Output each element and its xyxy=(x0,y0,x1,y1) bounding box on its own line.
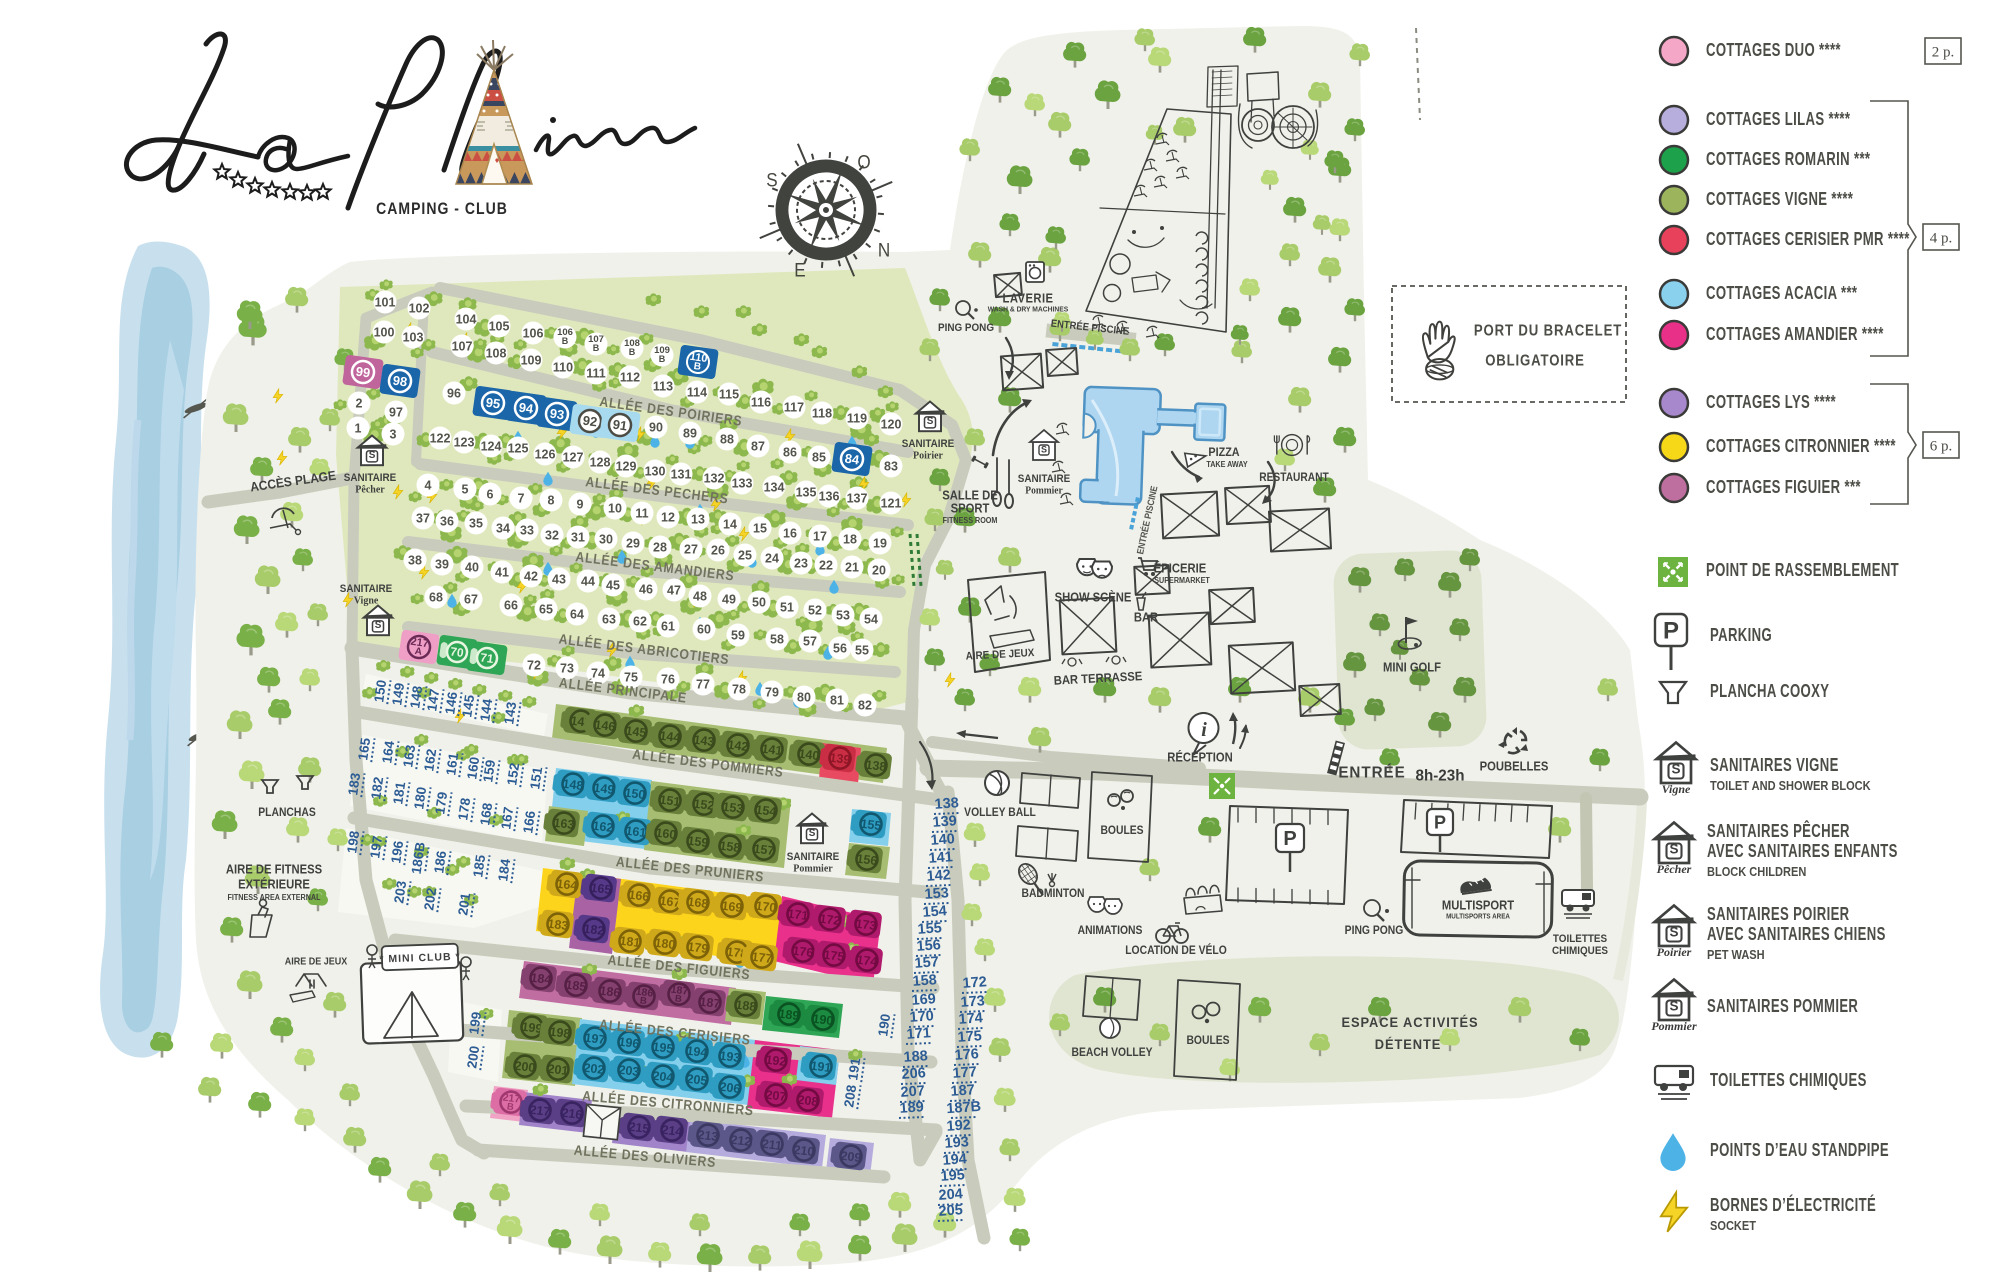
svg-text:20: 20 xyxy=(872,564,886,578)
svg-text:116: 116 xyxy=(751,396,771,410)
svg-text:40: 40 xyxy=(465,561,479,575)
svg-text:204: 204 xyxy=(938,1186,963,1204)
svg-text:159: 159 xyxy=(687,834,709,850)
svg-text:182: 182 xyxy=(368,776,386,800)
svg-text:138: 138 xyxy=(865,758,887,774)
svg-text:28: 28 xyxy=(653,541,667,555)
svg-text:8h-23h: 8h-23h xyxy=(1416,767,1465,784)
svg-text:142: 142 xyxy=(926,867,951,885)
svg-text:168: 168 xyxy=(477,801,495,826)
svg-text:167: 167 xyxy=(498,806,516,830)
svg-text:96: 96 xyxy=(447,387,461,401)
svg-text:SPORT: SPORT xyxy=(951,501,990,516)
svg-text:17: 17 xyxy=(813,530,827,544)
svg-text:25: 25 xyxy=(738,549,752,563)
svg-text:99: 99 xyxy=(355,364,371,381)
svg-text:SANITAIRES VIGNE: SANITAIRES VIGNE xyxy=(1710,755,1839,776)
svg-text:166: 166 xyxy=(520,809,538,834)
svg-text:4: 4 xyxy=(425,479,432,493)
svg-text:FITNESS ROOM: FITNESS ROOM xyxy=(943,515,998,524)
svg-text:BAR: BAR xyxy=(1134,610,1159,625)
svg-text:41: 41 xyxy=(495,566,509,580)
svg-text:9: 9 xyxy=(577,498,584,512)
svg-text:S: S xyxy=(1671,761,1680,776)
svg-text:73: 73 xyxy=(560,662,574,676)
svg-text:5: 5 xyxy=(462,483,469,497)
svg-text:O: O xyxy=(857,152,870,173)
svg-text:164: 164 xyxy=(556,877,578,893)
svg-text:Vigne: Vigne xyxy=(354,596,379,607)
svg-text:186: 186 xyxy=(431,849,449,874)
svg-text:191: 191 xyxy=(810,1059,832,1075)
svg-text:ENTRÉE: ENTRÉE xyxy=(1338,762,1405,781)
svg-text:180: 180 xyxy=(411,786,429,810)
svg-text:121: 121 xyxy=(881,497,902,511)
svg-text:144: 144 xyxy=(477,697,495,722)
svg-text:196: 196 xyxy=(388,839,406,864)
svg-text:29: 29 xyxy=(626,537,640,551)
svg-text:133: 133 xyxy=(732,477,753,491)
svg-text:211: 211 xyxy=(761,1137,783,1153)
svg-text:166: 166 xyxy=(628,888,650,904)
svg-text:SANITAIRE: SANITAIRE xyxy=(340,583,393,595)
svg-text:157: 157 xyxy=(753,842,775,858)
svg-text:SANITAIRES POMMIER: SANITAIRES POMMIER xyxy=(1707,996,1858,1017)
svg-text:S: S xyxy=(809,828,816,839)
svg-text:72: 72 xyxy=(527,659,541,673)
svg-text:2: 2 xyxy=(356,397,363,411)
svg-text:B: B xyxy=(593,343,600,353)
svg-text:149: 149 xyxy=(593,781,615,797)
svg-text:44: 44 xyxy=(581,575,595,589)
svg-text:189: 189 xyxy=(778,1007,800,1023)
svg-text:33: 33 xyxy=(520,524,534,538)
svg-text:2 p.: 2 p. xyxy=(1932,44,1955,60)
svg-text:PET WASH: PET WASH xyxy=(1707,947,1765,962)
svg-text:203: 203 xyxy=(391,879,409,904)
svg-text:COTTAGES FIGUIER ***: COTTAGES FIGUIER *** xyxy=(1706,477,1861,498)
svg-text:164: 164 xyxy=(379,739,397,764)
svg-text:183: 183 xyxy=(547,917,569,933)
svg-text:26: 26 xyxy=(711,544,725,558)
svg-text:201: 201 xyxy=(455,891,473,916)
svg-text:80: 80 xyxy=(797,691,811,705)
svg-text:PORT DU BRACELET: PORT DU BRACELET xyxy=(1474,322,1622,339)
svg-text:1: 1 xyxy=(355,422,362,436)
svg-text:202: 202 xyxy=(583,1061,605,1077)
svg-text:CAMPING - CLUB: CAMPING - CLUB xyxy=(376,200,508,218)
svg-text:42: 42 xyxy=(524,570,538,584)
svg-text:169: 169 xyxy=(911,991,936,1009)
svg-text:191: 191 xyxy=(845,1056,863,1081)
svg-text:93: 93 xyxy=(549,406,565,423)
svg-text:135: 135 xyxy=(796,486,817,500)
svg-text:140: 140 xyxy=(930,831,955,849)
svg-text:COTTAGES AMANDIER ****: COTTAGES AMANDIER **** xyxy=(1706,324,1884,345)
svg-text:97: 97 xyxy=(389,406,403,420)
svg-text:107: 107 xyxy=(452,340,473,354)
svg-text:128: 128 xyxy=(590,456,611,470)
svg-text:210: 210 xyxy=(793,1143,815,1159)
svg-text:94: 94 xyxy=(518,400,535,417)
svg-text:197: 197 xyxy=(367,835,385,859)
svg-text:BLOCK CHILDREN: BLOCK CHILDREN xyxy=(1707,864,1806,879)
svg-text:199: 199 xyxy=(466,1011,484,1035)
svg-text:134: 134 xyxy=(764,481,785,495)
svg-text:48: 48 xyxy=(693,590,707,604)
svg-text:159: 159 xyxy=(480,759,498,783)
svg-text:EXTÉRIEURE: EXTÉRIEURE xyxy=(238,876,310,892)
svg-text:153: 153 xyxy=(722,800,744,816)
svg-text:52: 52 xyxy=(808,604,822,618)
svg-text:156: 156 xyxy=(856,852,878,868)
svg-text:54: 54 xyxy=(864,613,878,627)
svg-text:32: 32 xyxy=(545,529,559,543)
svg-text:61: 61 xyxy=(661,620,675,634)
svg-text:S: S xyxy=(369,450,376,461)
svg-text:12: 12 xyxy=(661,511,675,525)
svg-text:204: 204 xyxy=(652,1069,674,1085)
svg-text:24: 24 xyxy=(765,552,779,566)
svg-text:6 p.: 6 p. xyxy=(1930,438,1953,454)
svg-text:Vigne: Vigne xyxy=(1662,782,1691,796)
svg-text:92: 92 xyxy=(582,413,598,430)
svg-text:MULTISPORT: MULTISPORT xyxy=(1442,898,1515,913)
svg-text:101: 101 xyxy=(375,296,396,310)
svg-text:106: 106 xyxy=(523,327,544,341)
svg-text:130: 130 xyxy=(645,465,666,479)
svg-text:169: 169 xyxy=(721,899,743,915)
svg-text:137: 137 xyxy=(847,492,868,506)
svg-text:S: S xyxy=(375,620,382,631)
svg-text:205: 205 xyxy=(938,1202,963,1220)
svg-text:POINT DE RASSEMBLEMENT: POINT DE RASSEMBLEMENT xyxy=(1706,560,1899,581)
svg-text:AIRE DE JEUX: AIRE DE JEUX xyxy=(285,956,348,968)
svg-text:217: 217 xyxy=(529,1103,551,1119)
svg-text:57: 57 xyxy=(803,635,817,649)
svg-text:S: S xyxy=(1669,998,1678,1013)
svg-text:195: 195 xyxy=(940,1167,965,1185)
svg-text:163: 163 xyxy=(400,743,418,768)
svg-text:190: 190 xyxy=(812,1012,834,1028)
svg-text:14: 14 xyxy=(723,518,737,532)
svg-text:Poirier: Poirier xyxy=(913,451,944,462)
svg-text:200: 200 xyxy=(464,1045,482,1069)
svg-text:205: 205 xyxy=(686,1072,708,1088)
svg-text:176: 176 xyxy=(954,1046,979,1064)
svg-text:34: 34 xyxy=(496,522,510,536)
svg-text:208: 208 xyxy=(841,1083,859,1108)
svg-text:TOILETTES CHIMIQUES: TOILETTES CHIMIQUES xyxy=(1710,1070,1867,1091)
svg-text:140: 140 xyxy=(798,747,820,763)
svg-text:76: 76 xyxy=(661,673,675,687)
svg-text:COTTAGES LILAS ****: COTTAGES LILAS **** xyxy=(1706,109,1851,130)
svg-text:63: 63 xyxy=(602,613,616,627)
svg-text:78: 78 xyxy=(732,683,746,697)
svg-text:6: 6 xyxy=(487,488,494,502)
svg-text:POINTS D’EAU STANDPIPE: POINTS D’EAU STANDPIPE xyxy=(1710,1140,1889,1161)
svg-text:162: 162 xyxy=(592,819,614,835)
svg-text:139: 139 xyxy=(932,813,957,831)
svg-text:SOCKET: SOCKET xyxy=(1710,1218,1757,1233)
svg-text:CHIMIQUES: CHIMIQUES xyxy=(1552,945,1608,957)
svg-text:87: 87 xyxy=(751,440,765,454)
svg-text:103: 103 xyxy=(403,331,424,345)
svg-text:64: 64 xyxy=(570,608,584,622)
svg-text:PARKING: PARKING xyxy=(1710,625,1772,646)
svg-text:143: 143 xyxy=(501,700,519,725)
svg-text:154: 154 xyxy=(755,803,777,819)
svg-text:163: 163 xyxy=(553,816,575,832)
svg-text:132: 132 xyxy=(704,472,725,486)
svg-text:COTTAGES CITRONNIER ****: COTTAGES CITRONNIER **** xyxy=(1706,436,1896,457)
svg-text:15: 15 xyxy=(753,522,767,536)
svg-text:Pommier: Pommier xyxy=(793,864,833,875)
svg-text:193: 193 xyxy=(944,1134,969,1152)
svg-text:Pêcher: Pêcher xyxy=(1657,862,1692,876)
svg-text:160: 160 xyxy=(655,826,677,842)
svg-text:161: 161 xyxy=(443,751,461,776)
svg-text:215: 215 xyxy=(628,1120,650,1136)
svg-text:143: 143 xyxy=(693,733,715,749)
svg-text:158: 158 xyxy=(912,972,937,990)
svg-text:21: 21 xyxy=(845,561,859,575)
svg-text:FITNESS AREA EXTERNAL: FITNESS AREA EXTERNAL xyxy=(227,892,320,901)
svg-text:148: 148 xyxy=(562,777,584,793)
svg-text:102: 102 xyxy=(409,302,430,316)
svg-text:203: 203 xyxy=(618,1063,640,1079)
svg-text:216: 216 xyxy=(561,1106,583,1122)
svg-text:OBLIGATOIRE: OBLIGATOIRE xyxy=(1485,352,1585,369)
svg-text:Poirier: Poirier xyxy=(1657,945,1692,959)
svg-text:53: 53 xyxy=(836,609,850,623)
svg-text:35: 35 xyxy=(469,517,483,531)
svg-text:110: 110 xyxy=(553,361,573,375)
svg-text:174: 174 xyxy=(958,1010,983,1028)
svg-text:181: 181 xyxy=(619,934,641,950)
svg-text:161: 161 xyxy=(625,824,647,840)
svg-text:Pommier: Pommier xyxy=(1651,1019,1697,1033)
svg-text:4 p.: 4 p. xyxy=(1930,230,1953,246)
svg-text:SANITAIRE: SANITAIRE xyxy=(1018,473,1071,485)
svg-text:N: N xyxy=(878,240,890,261)
svg-text:209: 209 xyxy=(840,1149,862,1165)
svg-text:193: 193 xyxy=(719,1049,741,1065)
svg-text:55: 55 xyxy=(855,644,869,658)
svg-text:208: 208 xyxy=(797,1093,819,1109)
svg-text:188: 188 xyxy=(903,1048,928,1066)
svg-text:100: 100 xyxy=(374,326,395,340)
svg-text:COTTAGES VIGNE ****: COTTAGES VIGNE **** xyxy=(1706,189,1854,210)
svg-text:BADMINTON: BADMINTON xyxy=(1021,888,1084,901)
svg-text:P: P xyxy=(1434,812,1446,832)
svg-text:30: 30 xyxy=(599,533,613,547)
svg-text:117: 117 xyxy=(784,401,804,415)
svg-text:120: 120 xyxy=(881,418,902,432)
svg-text:149: 149 xyxy=(389,682,407,706)
svg-text:60: 60 xyxy=(697,623,711,637)
svg-text:PLANCHA COOXY: PLANCHA COOXY xyxy=(1710,681,1829,702)
svg-text:127: 127 xyxy=(563,451,584,465)
svg-text:ESPACE ACTIVITÉS: ESPACE ACTIVITÉS xyxy=(1342,1014,1479,1030)
svg-text:3: 3 xyxy=(390,428,397,442)
svg-text:98: 98 xyxy=(392,373,408,390)
svg-text:PLANCHAS: PLANCHAS xyxy=(258,807,315,820)
svg-text:13: 13 xyxy=(691,513,705,527)
svg-text:37: 37 xyxy=(416,512,430,526)
svg-text:192: 192 xyxy=(765,1053,787,1069)
svg-text:B: B xyxy=(693,361,702,373)
svg-text:206: 206 xyxy=(901,1065,926,1083)
svg-text:COTTAGES ROMARIN ***: COTTAGES ROMARIN *** xyxy=(1706,149,1871,170)
svg-text:155: 155 xyxy=(860,817,882,833)
svg-text:150: 150 xyxy=(371,679,389,703)
svg-text:195: 195 xyxy=(652,1040,674,1056)
svg-text:129: 129 xyxy=(616,460,637,474)
svg-text:31: 31 xyxy=(571,531,585,545)
svg-text:66: 66 xyxy=(504,599,518,613)
svg-text:175: 175 xyxy=(823,948,845,964)
svg-text:152: 152 xyxy=(504,762,522,786)
svg-text:152: 152 xyxy=(693,797,715,813)
svg-text:154: 154 xyxy=(922,903,947,921)
svg-text:212: 212 xyxy=(730,1133,752,1149)
svg-text:187: 187 xyxy=(950,1082,975,1100)
svg-text:112: 112 xyxy=(620,371,640,385)
svg-text:91: 91 xyxy=(612,417,628,434)
svg-text:141: 141 xyxy=(928,849,953,867)
svg-text:S: S xyxy=(1669,841,1678,856)
svg-text:115: 115 xyxy=(719,388,739,402)
svg-text:8: 8 xyxy=(548,494,555,508)
svg-text:BOULES: BOULES xyxy=(1186,1035,1229,1048)
svg-text:SANITAIRES PÊCHER: SANITAIRES PÊCHER xyxy=(1707,820,1850,842)
svg-text:BEACH VOLLEY: BEACH VOLLEY xyxy=(1071,1047,1153,1060)
svg-text:167: 167 xyxy=(659,894,681,910)
svg-text:200: 200 xyxy=(514,1059,536,1075)
svg-text:192: 192 xyxy=(946,1117,971,1135)
svg-text:176: 176 xyxy=(792,944,814,960)
svg-text:187B: 187B xyxy=(946,1099,982,1117)
svg-text:90: 90 xyxy=(649,421,663,435)
svg-text:187: 187 xyxy=(699,995,721,1011)
svg-text:Pêcher: Pêcher xyxy=(355,485,385,496)
svg-text:SANITAIRE: SANITAIRE xyxy=(902,438,955,450)
svg-text:201: 201 xyxy=(547,1062,569,1078)
svg-text:MULTISPORTS AREA: MULTISPORTS AREA xyxy=(1446,913,1510,920)
svg-text:COTTAGES ACACIA ***: COTTAGES ACACIA *** xyxy=(1706,283,1858,304)
svg-text:AVEC SANITAIRES CHIENS: AVEC SANITAIRES CHIENS xyxy=(1707,924,1886,945)
svg-text:47: 47 xyxy=(667,584,681,598)
svg-text:PING PONG: PING PONG xyxy=(1345,925,1404,938)
svg-text:165: 165 xyxy=(590,881,612,897)
svg-text:i: i xyxy=(1201,719,1207,741)
svg-text:122: 122 xyxy=(430,432,451,446)
svg-text:COTTAGES DUO ****: COTTAGES DUO **** xyxy=(1706,40,1841,61)
svg-text:A: A xyxy=(414,646,423,658)
svg-text:82: 82 xyxy=(858,699,872,713)
svg-text:19: 19 xyxy=(873,537,887,551)
svg-text:109: 109 xyxy=(521,354,542,368)
svg-text:144: 144 xyxy=(659,729,681,745)
svg-text:62: 62 xyxy=(633,615,647,629)
svg-text:172: 172 xyxy=(962,974,987,992)
svg-text:126: 126 xyxy=(535,448,556,462)
svg-text:188: 188 xyxy=(735,998,757,1014)
svg-text:89: 89 xyxy=(683,427,697,441)
svg-text:118: 118 xyxy=(812,407,832,421)
svg-text:165: 165 xyxy=(355,736,373,761)
svg-text:206: 206 xyxy=(719,1080,741,1096)
svg-text:71: 71 xyxy=(479,650,494,666)
svg-text:185: 185 xyxy=(565,978,587,994)
svg-text:182: 182 xyxy=(583,922,605,938)
svg-text:BORNES D’ÉLECTRICITÉ: BORNES D’ÉLECTRICITÉ xyxy=(1710,1194,1876,1216)
svg-text:184: 184 xyxy=(530,971,552,987)
svg-text:COTTAGES CERISIER PMR ****: COTTAGES CERISIER PMR **** xyxy=(1706,229,1910,250)
svg-text:179: 179 xyxy=(432,791,450,815)
svg-text:198: 198 xyxy=(549,1025,571,1041)
svg-text:SHOW SCÈNE: SHOW SCÈNE xyxy=(1055,589,1132,605)
svg-text:139: 139 xyxy=(829,751,851,767)
svg-text:DÉTENTE: DÉTENTE xyxy=(1375,1036,1442,1052)
svg-text:77: 77 xyxy=(696,678,710,692)
svg-text:P: P xyxy=(1283,828,1296,850)
svg-text:141: 141 xyxy=(761,742,783,758)
svg-text:198: 198 xyxy=(344,829,362,854)
svg-text:177: 177 xyxy=(751,950,773,966)
svg-text:194: 194 xyxy=(686,1044,708,1060)
svg-text:86: 86 xyxy=(783,446,797,460)
svg-text:S: S xyxy=(1669,924,1678,939)
svg-text:27: 27 xyxy=(684,543,698,557)
svg-text:BOULES: BOULES xyxy=(1100,825,1143,838)
svg-text:TAKE AWAY: TAKE AWAY xyxy=(1206,459,1247,468)
svg-text:79: 79 xyxy=(765,686,779,700)
svg-text:145: 145 xyxy=(459,693,477,718)
svg-text:VOLLEY BALL: VOLLEY BALL xyxy=(964,807,1036,820)
svg-text:114: 114 xyxy=(687,386,707,400)
svg-text:39: 39 xyxy=(435,558,449,572)
svg-text:38: 38 xyxy=(408,554,422,568)
svg-text:SUPERMARKET: SUPERMARKET xyxy=(1154,575,1210,584)
svg-text:51: 51 xyxy=(780,601,794,615)
svg-text:124: 124 xyxy=(481,440,502,454)
svg-text:194: 194 xyxy=(942,1151,967,1169)
svg-text:23: 23 xyxy=(794,557,808,571)
svg-text:TOILETTES: TOILETTES xyxy=(1553,933,1607,945)
svg-text:181: 181 xyxy=(390,780,408,805)
svg-text:157: 157 xyxy=(914,954,939,972)
svg-text:22: 22 xyxy=(819,559,833,573)
svg-text:207: 207 xyxy=(765,1088,787,1104)
svg-text:Pommier: Pommier xyxy=(1025,485,1063,496)
svg-text:151: 151 xyxy=(659,793,681,809)
svg-text:16: 16 xyxy=(783,527,797,541)
svg-text:E: E xyxy=(794,260,805,281)
svg-text:B: B xyxy=(659,354,666,364)
svg-text:LAVERIE: LAVERIE xyxy=(1002,291,1053,306)
svg-text:65: 65 xyxy=(539,603,553,617)
svg-text:214: 214 xyxy=(661,1123,683,1139)
svg-text:153: 153 xyxy=(924,885,949,903)
svg-text:189: 189 xyxy=(899,1099,924,1117)
svg-text:ÉPICERIE: ÉPICERIE xyxy=(1154,560,1207,576)
svg-text:SANITAIRE: SANITAIRE xyxy=(787,851,840,863)
svg-text:136: 136 xyxy=(819,490,840,504)
svg-text:95: 95 xyxy=(485,395,501,412)
svg-text:18: 18 xyxy=(843,533,857,547)
